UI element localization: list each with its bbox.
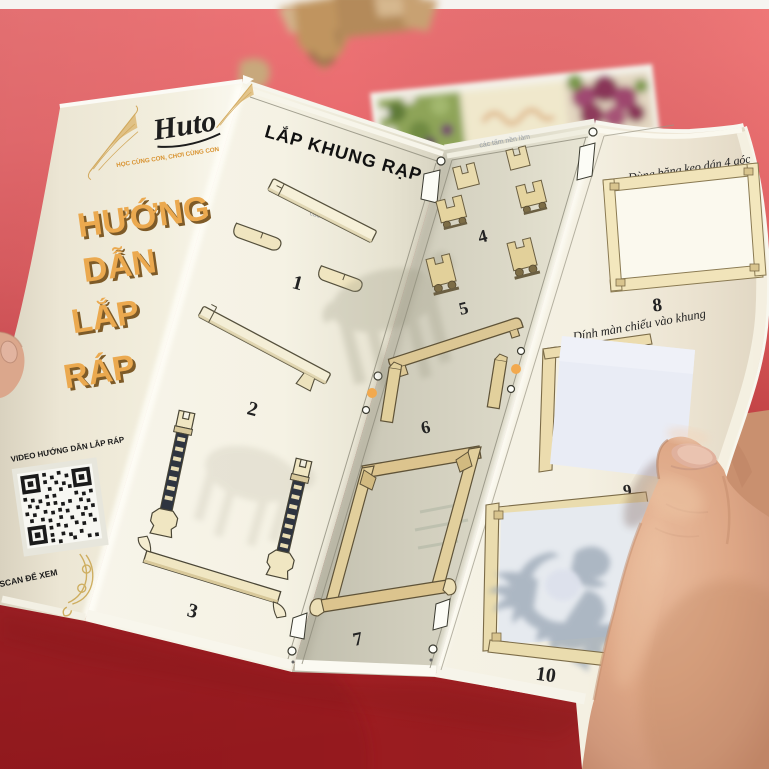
svg-text:10: 10 xyxy=(534,663,557,688)
